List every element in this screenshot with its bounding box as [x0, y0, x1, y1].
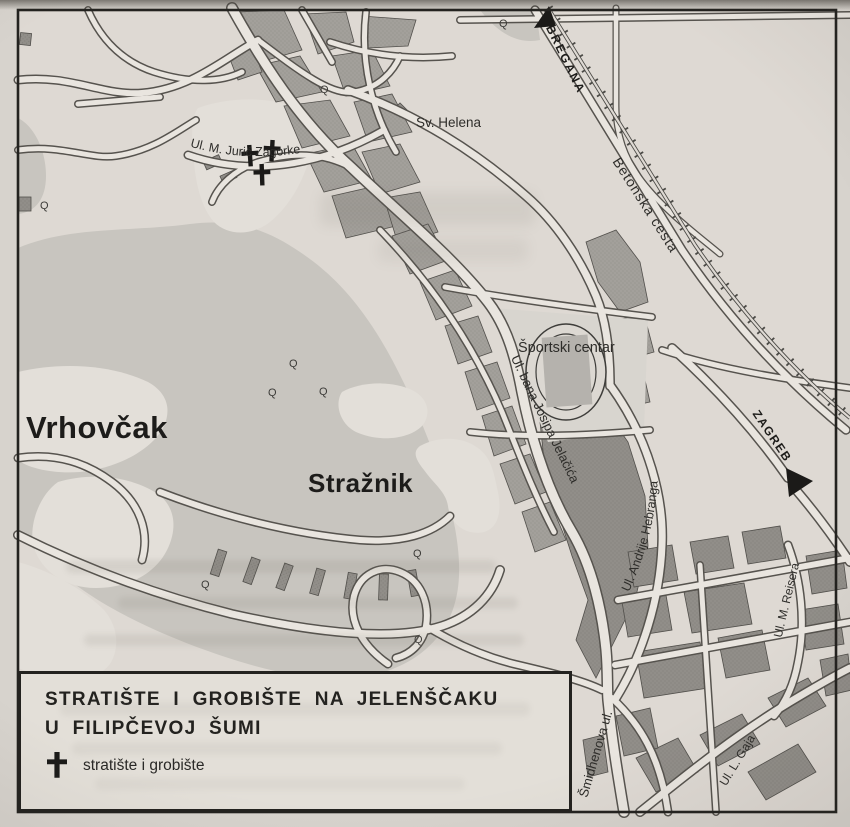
tree-icon: Q — [201, 579, 210, 591]
legend-title-line2: U FILIPČEVOJ ŠUMI — [45, 718, 569, 740]
tree-icon: Q — [40, 200, 49, 212]
tree-icon: Q — [414, 634, 423, 646]
legend-title-line1: STRATIŠTE I GROBIŠTE NA JELENŠČAKU — [45, 689, 569, 711]
label-straznik: Stražnik — [308, 468, 413, 498]
label-sv-helena: Sv. Helena — [416, 115, 482, 130]
tree-icon: Q — [289, 358, 298, 370]
tree-icon: Q — [499, 18, 508, 30]
scanned-page: Q Q Q Q Q Q Q Q Q Vrhovčak Stražnik Sv. … — [0, 0, 850, 827]
label-sportski-centar: Športski centar — [518, 339, 615, 356]
building — [19, 197, 31, 211]
urban-block — [362, 16, 416, 48]
tree-icon: Q — [319, 386, 328, 398]
tree-icon: Q — [268, 387, 277, 399]
terrace-row — [379, 574, 389, 600]
legend-box: STRATIŠTE I GROBIŠTE NA JELENŠČAKU U FIL… — [18, 671, 572, 812]
legend-item-label: stratište i grobište — [83, 757, 204, 775]
tree-icon: Q — [413, 548, 422, 560]
building — [19, 33, 31, 46]
building — [742, 526, 786, 564]
legend-item-row: stratište i grobište — [45, 751, 569, 781]
label-vrhovcak: Vrhovčak — [26, 410, 168, 445]
grave-cross-icon — [45, 751, 69, 781]
tree-icon: Q — [320, 84, 329, 96]
